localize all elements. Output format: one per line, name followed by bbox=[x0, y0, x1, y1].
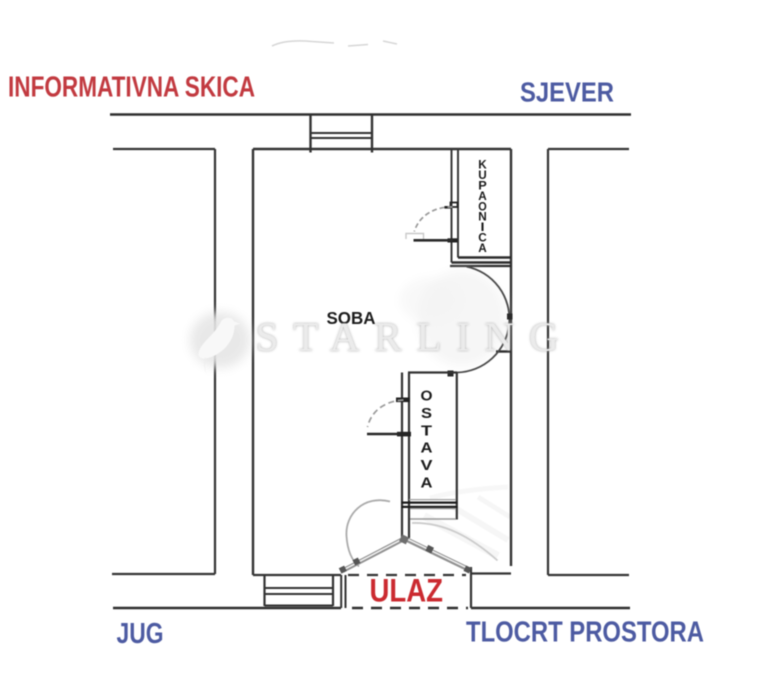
svg-text:A: A bbox=[421, 476, 434, 492]
svg-text:T: T bbox=[421, 423, 432, 439]
svg-text:O: O bbox=[421, 389, 433, 405]
svg-text:A: A bbox=[421, 441, 434, 457]
svg-text:TLOCRT PROSTORA: TLOCRT PROSTORA bbox=[466, 617, 704, 649]
svg-text:A: A bbox=[478, 243, 487, 255]
svg-text:SJEVER: SJEVER bbox=[520, 77, 614, 108]
svg-text:INFORMATIVNA SKICA: INFORMATIVNA SKICA bbox=[8, 72, 255, 104]
svg-text:JUG: JUG bbox=[117, 618, 164, 650]
svg-text:V: V bbox=[421, 458, 433, 474]
svg-text:ULAZ: ULAZ bbox=[370, 573, 444, 609]
svg-text:S: S bbox=[421, 406, 432, 422]
svg-text:STARLING: STARLING bbox=[256, 314, 574, 360]
